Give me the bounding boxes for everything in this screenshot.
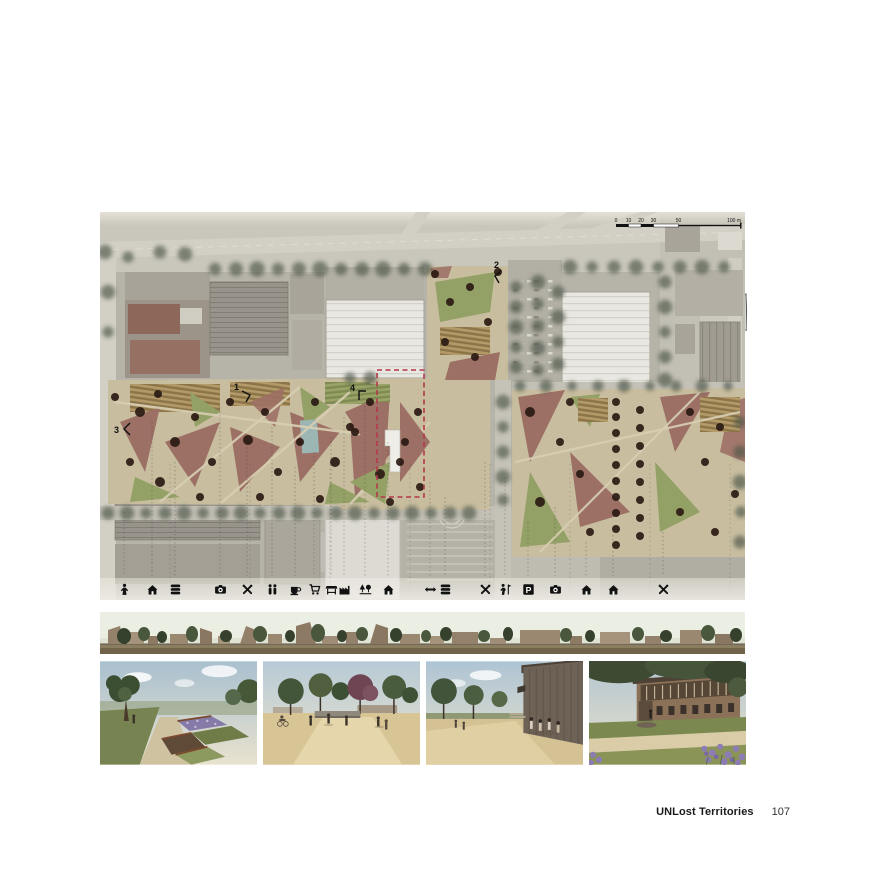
svg-text:30: 30 — [651, 218, 657, 224]
exchange-icon — [424, 583, 437, 596]
svg-text:20: 20 — [638, 218, 644, 224]
program-legend-strip: P — [100, 578, 745, 600]
layers-icon — [169, 583, 182, 596]
site-plan: 1 2 3 4 0 10 20 30 50 — [100, 212, 745, 600]
plan-marker-1: 1 — [234, 382, 239, 392]
page-number: 107 — [772, 806, 790, 818]
page-footer: UNLost Territories 107 — [656, 806, 790, 818]
render-thumbnail-gardens — [100, 661, 257, 765]
parking-icon: P — [522, 583, 535, 596]
plan-marker-2: 2 — [494, 260, 499, 270]
cafe-icon — [289, 583, 302, 596]
activity-icon — [499, 583, 512, 596]
svg-text:10: 10 — [626, 218, 632, 224]
cart-icon — [308, 583, 321, 596]
layers-icon — [439, 583, 452, 596]
aerial-masterplan: 1 2 3 4 0 10 20 30 50 — [100, 212, 745, 600]
concept-sequence — [0, 130, 875, 210]
house-icon — [146, 583, 159, 596]
camera-icon — [214, 583, 227, 596]
house-icon — [580, 583, 593, 596]
tools-icon — [479, 583, 492, 596]
book-page: 1 2 3 4 0 10 20 30 50 — [0, 0, 875, 875]
render-thumbnail-plaza — [263, 661, 420, 765]
svg-text:P: P — [526, 585, 532, 595]
house-icon — [607, 583, 620, 596]
camera-icon — [549, 583, 562, 596]
svg-text:0: 0 — [615, 218, 618, 224]
house-icon — [382, 583, 395, 596]
people-icon — [266, 583, 279, 596]
tools-icon — [241, 583, 254, 596]
render-thumbnail-promenade — [426, 661, 583, 765]
trees-icon — [359, 583, 372, 596]
tools-icon — [657, 583, 670, 596]
svg-text:50: 50 — [676, 218, 682, 224]
industry-icon — [338, 583, 351, 596]
render-row — [100, 661, 746, 765]
svg-text:100 m: 100 m — [727, 218, 741, 224]
plan-marker-3: 3 — [114, 425, 119, 435]
elevation-panorama — [100, 612, 745, 654]
render-thumbnail-courtyard — [589, 661, 746, 765]
plan-marker-4: 4 — [350, 383, 355, 393]
sculpture-icon — [118, 583, 131, 596]
market-icon — [325, 583, 338, 596]
book-title: UNLost Territories — [656, 806, 754, 818]
